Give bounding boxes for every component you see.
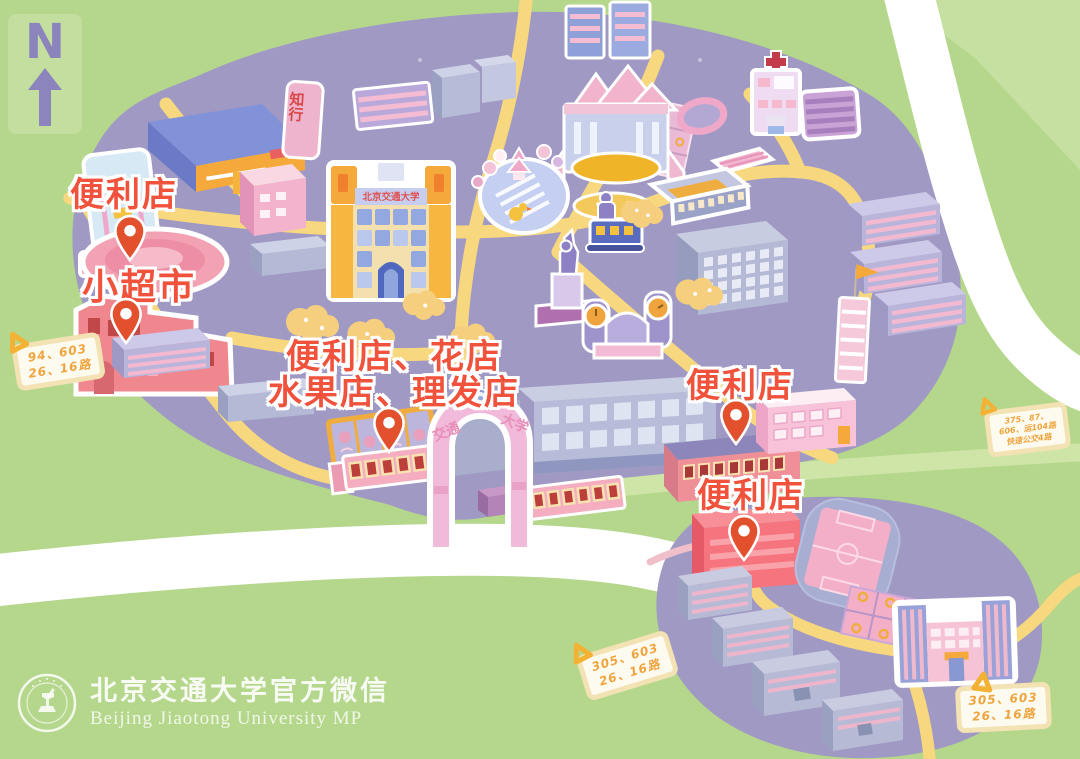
- building-dorm-south: [892, 596, 1019, 688]
- university-seal-logo: [16, 672, 78, 734]
- campus-map: 知行 北京交通大学: [0, 0, 1080, 759]
- official-account-watermark: 北京交通大学官方微信 Beijing Jiaotong University M…: [16, 672, 390, 734]
- stone-inscription: 知行: [286, 90, 306, 123]
- map-pin-supermarket: [108, 297, 144, 349]
- library-banner-text: 北京交通大学: [362, 191, 420, 203]
- bus-stop-tag-east: 375、87、 606、运104路 快速公交4路: [983, 401, 1072, 458]
- map-pin-convenience-south: [726, 514, 762, 566]
- map-pin-convenience-nw: [112, 214, 148, 266]
- watermark-title-en: Beijing Jiaotong University MP: [90, 708, 390, 730]
- campus-map-illustration: 知行 北京交通大学: [0, 0, 1080, 759]
- north-indicator: N: [8, 14, 82, 134]
- bus-routes-line: 26、16路: [972, 706, 1036, 725]
- label-convenience-nw: 便利店: [70, 178, 178, 212]
- north-letter: N: [25, 18, 65, 66]
- label-shops-center-line2: 水果店、理发店: [268, 376, 520, 410]
- label-convenience-south: 便利店: [697, 479, 805, 513]
- bus-stop-tag-south-east: 305、603 26、16路: [955, 682, 1052, 734]
- map-pin-shops-center: [371, 406, 407, 458]
- map-pin-convenience-east: [718, 398, 754, 450]
- zhixing-stone: 知行: [282, 81, 323, 159]
- watermark-title-cn: 北京交通大学官方微信: [90, 676, 390, 708]
- building-striped-violet: [801, 88, 860, 140]
- label-shops-center-line1: 便利店、花店: [286, 340, 502, 374]
- building-pink-block: [240, 164, 306, 236]
- building-main-library: 北京交通大学: [326, 160, 456, 302]
- bus-tag-triangle-icon: [967, 667, 998, 696]
- building-striped-lilac: [353, 82, 433, 130]
- north-arrow-icon: [25, 66, 65, 128]
